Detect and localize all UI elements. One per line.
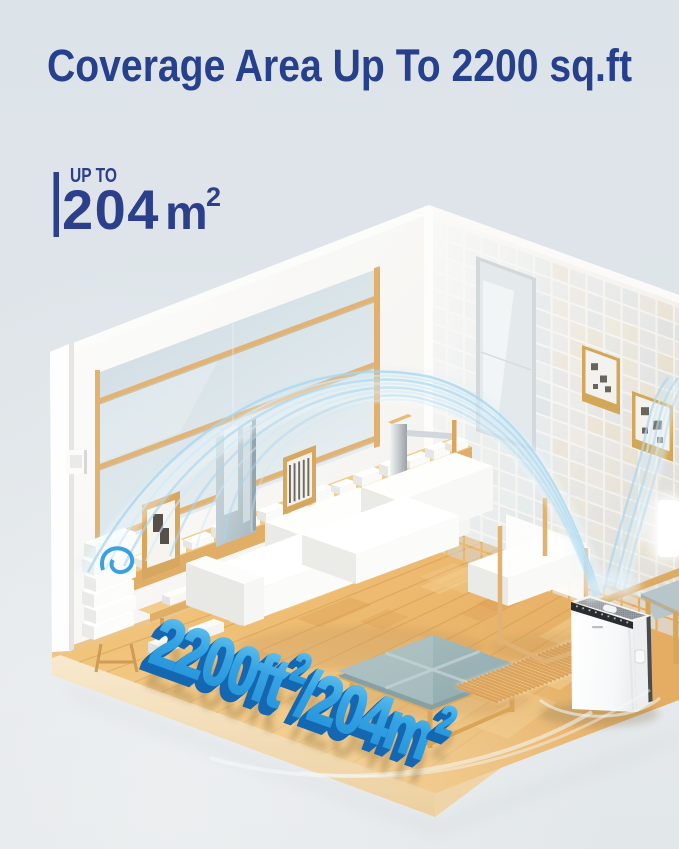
- svg-text:Coverage Area Up To 2200 sq.ft: Coverage Area Up To 2200 sq.ft: [47, 40, 632, 91]
- svg-text:204: 204: [62, 178, 160, 241]
- svg-text:2: 2: [206, 182, 221, 212]
- svg-text:m: m: [165, 187, 208, 240]
